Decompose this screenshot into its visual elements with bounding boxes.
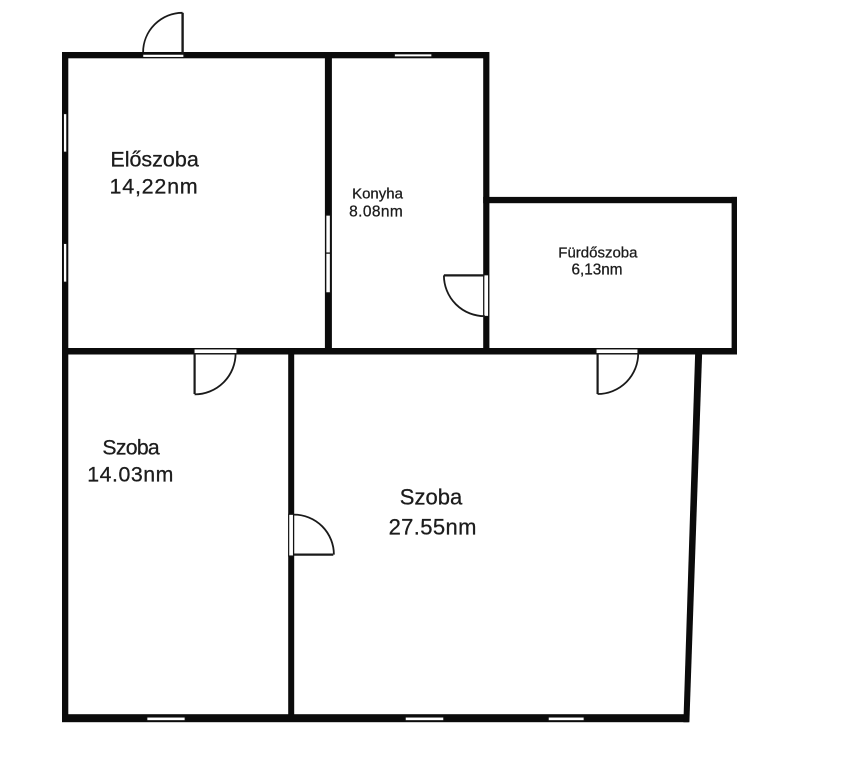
svg-text:8.08nm: 8.08nm	[349, 204, 403, 221]
svg-text:27.55nm: 27.55nm	[389, 515, 477, 540]
svg-text:Fürdőszoba: Fürdőszoba	[558, 244, 638, 261]
svg-text:14.03nm: 14.03nm	[87, 462, 174, 486]
svg-text:14,22nm: 14,22nm	[110, 175, 199, 199]
svg-text:6,13nm: 6,13nm	[571, 261, 622, 278]
svg-text:Szoba: Szoba	[400, 485, 463, 510]
svg-text:Előszoba: Előszoba	[110, 148, 198, 172]
svg-text:Konyha: Konyha	[352, 186, 404, 203]
svg-text:Szoba: Szoba	[102, 437, 159, 460]
